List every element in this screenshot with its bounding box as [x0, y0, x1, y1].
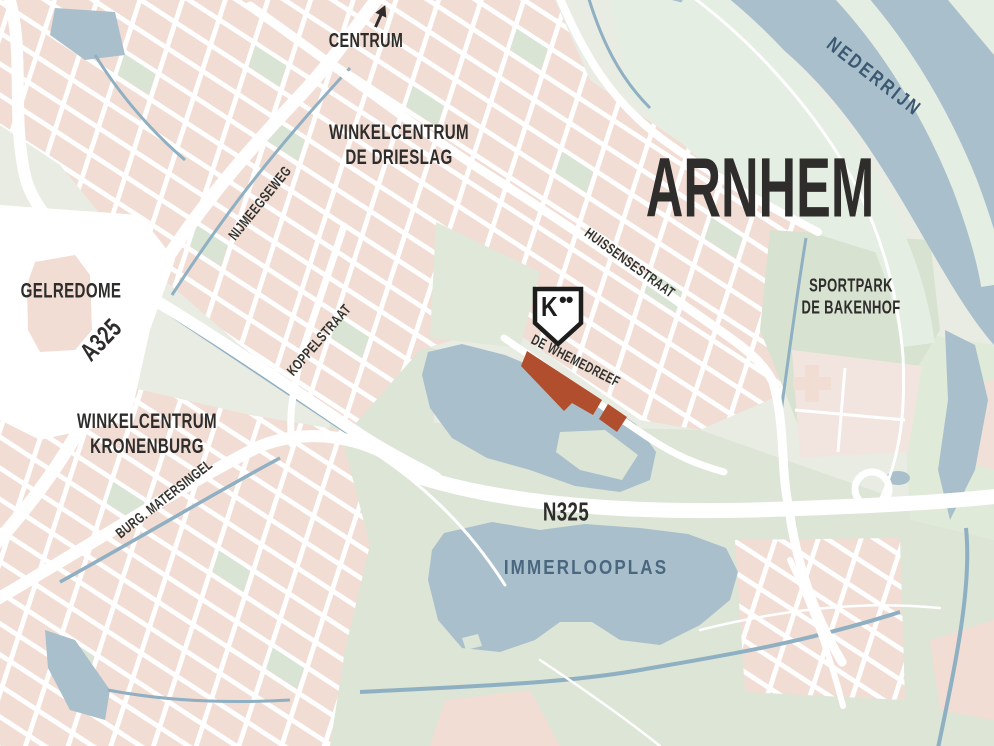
k-marker-letter: K — [541, 291, 558, 323]
centrum-label: CENTRUM — [329, 29, 404, 53]
sportpark-label: SPORTPARK DE BAKENHOF — [801, 275, 900, 318]
city-label: ARNHEM — [646, 138, 875, 239]
n325-label: N325 — [543, 496, 589, 527]
winkelcentrum-kronenburg-label: WINKELCENTRUM KRONENBURG — [77, 409, 217, 459]
winkelcentrum-drieslag-label: WINKELCENTRUM DE DRIESLAG — [329, 120, 469, 170]
map-canvas — [0, 0, 994, 746]
lake-label: IMMERLOOPLAS — [504, 556, 668, 580]
k-marker-dots: •• — [559, 287, 572, 313]
arnhem-map: K •• CENTRUM WINKELCENTRUM DE DRIESLAG A… — [0, 0, 994, 746]
gelredome-label: GELREDOME — [21, 278, 122, 303]
